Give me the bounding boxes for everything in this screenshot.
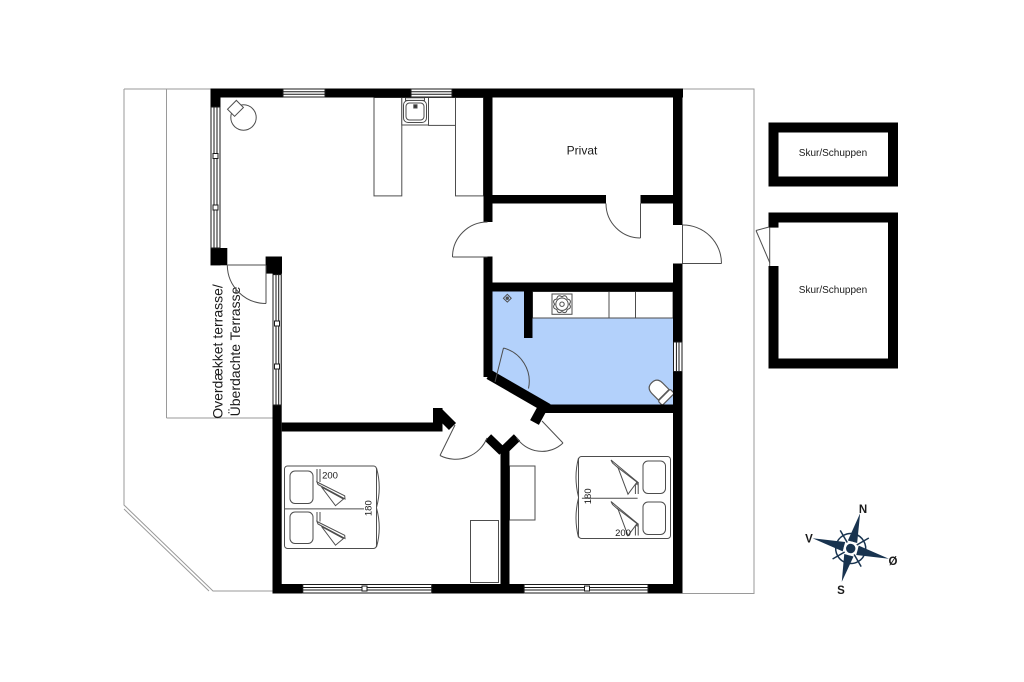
svg-text:200: 200 (322, 471, 338, 482)
svg-text:Skur/Schuppen: Skur/Schuppen (799, 285, 867, 296)
svg-text:180: 180 (583, 488, 594, 504)
svg-text:Ø: Ø (889, 556, 898, 568)
svg-text:Privat: Privat (567, 144, 598, 158)
svg-text:N: N (859, 504, 867, 516)
svg-text:Overdækket terrasse/: Overdækket terrasse/ (210, 284, 226, 419)
svg-text:S: S (837, 585, 845, 597)
svg-text:V: V (805, 534, 813, 546)
svg-text:180: 180 (364, 500, 375, 516)
svg-text:200: 200 (615, 528, 631, 539)
svg-text:Skur/Schuppen: Skur/Schuppen (799, 148, 867, 159)
svg-text:Überdachte Terrasse: Überdachte Terrasse (226, 286, 243, 416)
